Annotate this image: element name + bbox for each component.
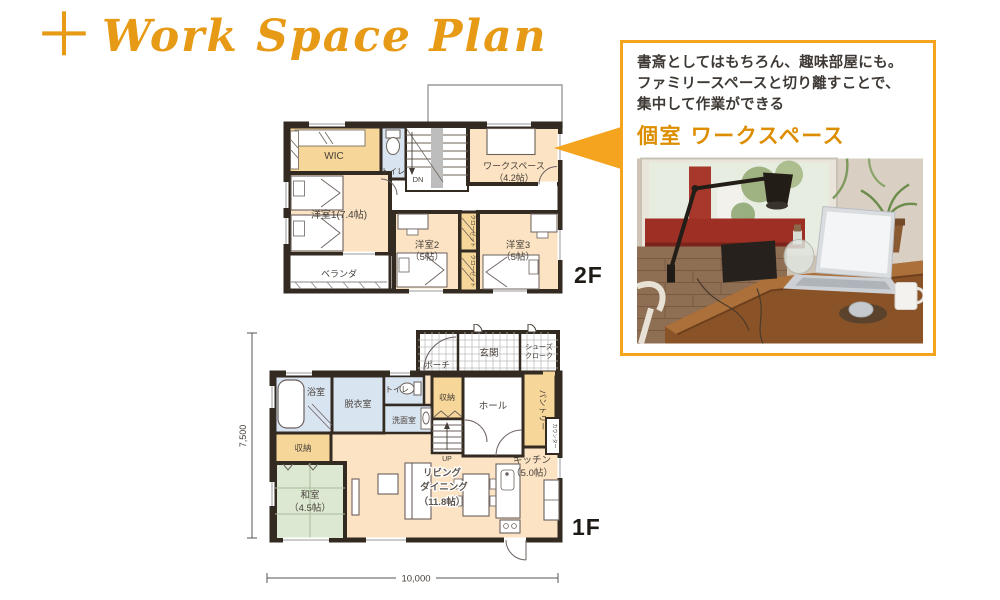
label-bedroom2: 洋室2 bbox=[415, 239, 439, 251]
bathtub bbox=[278, 380, 304, 428]
label-bedroom1: 洋室1(7.4帖) bbox=[311, 208, 367, 221]
workspace-desk bbox=[487, 129, 535, 155]
label-toilet-2f: トイレ bbox=[381, 167, 405, 176]
callout-heading: 個室 ワークスペース bbox=[637, 120, 921, 150]
dim-width: 10,000 bbox=[401, 574, 430, 585]
label-closet1: クローゼット bbox=[469, 214, 477, 247]
workspace-photo bbox=[637, 157, 923, 345]
label-workspace: ワークスペース bbox=[483, 161, 545, 171]
label-living1: リビング bbox=[423, 467, 462, 479]
label-washroom: 洗面室 bbox=[392, 415, 416, 425]
label-counter: カウンター bbox=[551, 423, 558, 448]
label-shoes2: クローク bbox=[525, 352, 553, 360]
callout-box: 書斎としてはもちろん、趣味部屋にも。 ファミリースペースと切り離すことで、 集中… bbox=[620, 40, 936, 356]
title-text: Work Space Plan bbox=[102, 4, 548, 70]
label-up: UP bbox=[442, 456, 452, 463]
callout-arrow bbox=[554, 127, 621, 169]
floor2-label: 2F bbox=[574, 262, 603, 289]
label-hall: ホール bbox=[479, 401, 508, 412]
label-closet2: クローゼット bbox=[469, 254, 477, 287]
page: ＋ Work Space Plan bbox=[0, 0, 1000, 600]
callout-line2: ファミリースペースと切り離すことで、 bbox=[637, 74, 921, 95]
toilet-fixture-2f bbox=[386, 130, 400, 155]
dim-height: 7,500 bbox=[238, 425, 248, 448]
callout-line1: 書斎としてはもちろん、趣味部屋にも。 bbox=[637, 53, 921, 74]
label-washitsu-size: （4.5帖） bbox=[289, 502, 331, 514]
pantry-door-gap bbox=[543, 372, 555, 376]
page-title: ＋ Work Space Plan bbox=[34, 4, 548, 70]
label-bedroom2-size: （5帖） bbox=[410, 251, 444, 263]
floor-plan-1f: 7,500 10,000 ポーチ 玄関 シューズ クローク 浴室 脱衣室 トイレ… bbox=[238, 324, 583, 589]
floor-plan-2f: WIC トイレ DN ワークスペース （4.2帖） 洋室1(7.4帖) ベランダ… bbox=[281, 82, 581, 307]
label-toilet-1f: トイレ bbox=[385, 385, 409, 394]
label-wic: WIC bbox=[324, 151, 343, 162]
label-workspace-size: （4.2帖） bbox=[494, 172, 534, 183]
label-kitchen: キッチン bbox=[513, 455, 551, 466]
label-living2: ダイニング bbox=[420, 481, 468, 493]
label-shoes1: シューズ bbox=[525, 342, 553, 351]
label-bath: 浴室 bbox=[307, 386, 325, 397]
floor1-label: 1F bbox=[572, 514, 601, 541]
label-washitsu: 和室 bbox=[300, 489, 319, 501]
label-bedroom3-size: （5帖） bbox=[501, 251, 535, 263]
label-living3: （11.8帖） bbox=[419, 496, 465, 508]
vanity bbox=[421, 408, 431, 429]
plus-icon: ＋ bbox=[34, 4, 94, 68]
label-dn: DN bbox=[413, 175, 424, 184]
label-kitchen-size: （5.0帖） bbox=[511, 467, 553, 479]
label-storage-left: 収納 bbox=[294, 443, 311, 453]
kitchen-door bbox=[504, 538, 526, 561]
label-dressing: 脱衣室 bbox=[344, 398, 371, 409]
label-entrance: 玄関 bbox=[479, 347, 498, 359]
label-bedroom3: 洋室3 bbox=[506, 239, 530, 251]
label-storage-top: 収納 bbox=[439, 392, 455, 402]
room-hall bbox=[463, 376, 523, 456]
label-veranda: ベランダ bbox=[321, 268, 357, 279]
label-pantry: パントリー bbox=[538, 390, 547, 430]
label-porch: ポーチ bbox=[424, 360, 450, 370]
callout-line3: 集中して作業ができる bbox=[637, 95, 921, 116]
